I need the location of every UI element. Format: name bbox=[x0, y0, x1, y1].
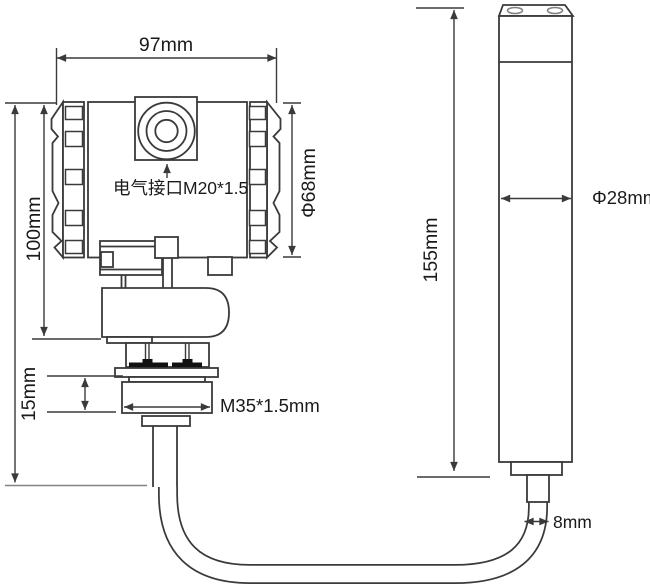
cable-diameter-label: 8mm bbox=[553, 512, 592, 532]
housing-right-cap-clamp bbox=[267, 102, 281, 258]
bracket-slot bbox=[101, 252, 113, 267]
thread-height-label: 15mm bbox=[18, 367, 40, 421]
probe-cap-hole-left bbox=[508, 8, 523, 14]
probe-tube bbox=[499, 16, 572, 462]
dimension-lines bbox=[5, 8, 571, 522]
housing-left-cap-clamp bbox=[52, 102, 64, 258]
housing-width-label: 97mm bbox=[139, 34, 193, 56]
thread-hex-block bbox=[122, 382, 212, 413]
housing-height-label: 100mm bbox=[23, 196, 45, 261]
thread-spec-label: M35*1.5mm bbox=[220, 395, 320, 416]
probe-cable-gland bbox=[527, 475, 549, 502]
probe bbox=[499, 5, 573, 502]
flange-plate bbox=[115, 368, 218, 377]
bracket-bolt-head bbox=[155, 237, 178, 258]
cable-core bbox=[168, 487, 538, 574]
thread-connection bbox=[115, 368, 218, 487]
stem-collar bbox=[142, 416, 190, 426]
probe-cap-hole-right bbox=[548, 8, 563, 14]
electrical-interface-label: 电气接口M20*1.5 bbox=[113, 178, 248, 198]
cable bbox=[168, 487, 538, 574]
probe-diameter-label: Φ28mm bbox=[592, 187, 650, 208]
cable-outline bbox=[168, 487, 538, 574]
conduit-circle-inner bbox=[155, 120, 177, 142]
probe-length-label: 155mm bbox=[420, 217, 442, 282]
dimension-drawing: 97mm 100mm 15mm Φ68mm 电气接口M20*1.5 M35*1.… bbox=[0, 0, 650, 584]
housing-right-step bbox=[208, 257, 232, 275]
process-body bbox=[102, 288, 229, 337]
drawing-svg: 97mm 100mm 15mm Φ68mm 电气接口M20*1.5 M35*1.… bbox=[0, 0, 650, 584]
transmitter-housing bbox=[52, 97, 281, 367]
probe-bottom-collar bbox=[511, 462, 562, 475]
housing-diameter-label: Φ68mm bbox=[298, 148, 320, 218]
